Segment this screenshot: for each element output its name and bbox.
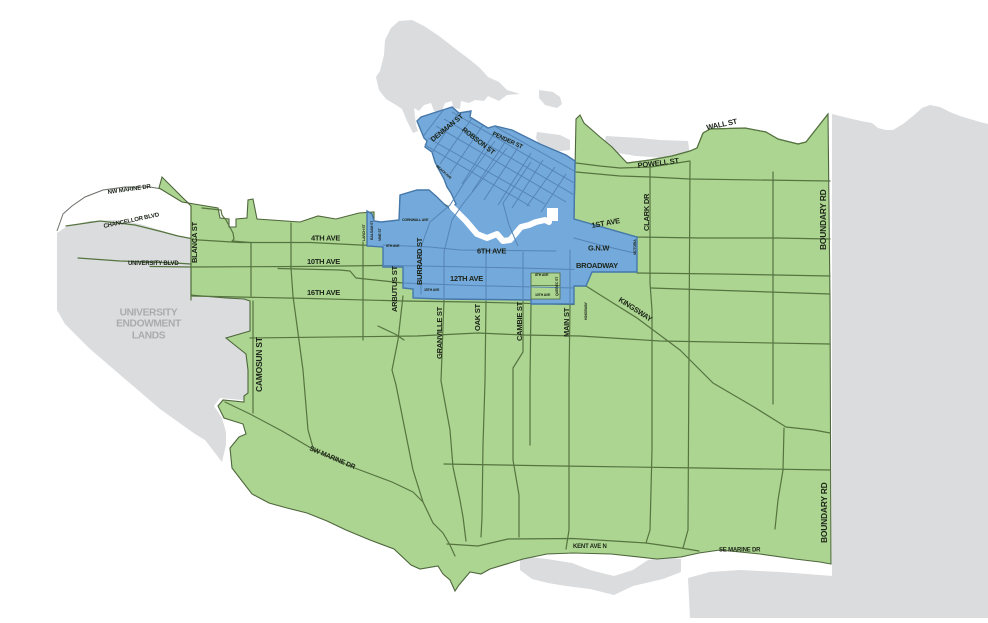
svg-text:10TH AVE: 10TH AVE bbox=[307, 257, 340, 266]
svg-text:BOUNDARY RD: BOUNDARY RD bbox=[818, 189, 828, 250]
svg-text:ENDOWMENT: ENDOWMENT bbox=[116, 319, 182, 330]
svg-text:8TH AVE: 8TH AVE bbox=[535, 273, 549, 277]
svg-text:G.N.W: G.N.W bbox=[588, 244, 610, 253]
svg-text:5TH AVE: 5TH AVE bbox=[386, 244, 400, 248]
svg-text:BROADWAY: BROADWAY bbox=[576, 261, 618, 270]
svg-text:BALSAM ST: BALSAM ST bbox=[370, 220, 374, 240]
svg-text:ARBUTUS ST: ARBUTUS ST bbox=[390, 265, 399, 312]
svg-text:BLANCA ST: BLANCA ST bbox=[190, 222, 199, 263]
svg-text:15TH AVE: 15TH AVE bbox=[424, 288, 440, 292]
svg-text:GRANVILLE ST: GRANVILLE ST bbox=[435, 306, 444, 359]
svg-text:SE MARINE DR: SE MARINE DR bbox=[719, 548, 761, 554]
svg-text:UNIVERSITY: UNIVERSITY bbox=[120, 308, 178, 319]
svg-text:LANDS: LANDS bbox=[132, 331, 166, 342]
svg-text:BURRARD ST: BURRARD ST bbox=[415, 237, 424, 285]
svg-text:MAIN ST: MAIN ST bbox=[562, 307, 571, 337]
svg-text:VINE ST: VINE ST bbox=[378, 227, 382, 241]
svg-text:CAMBIE ST: CAMBIE ST bbox=[515, 301, 524, 341]
svg-text:10TH AVE: 10TH AVE bbox=[535, 293, 551, 297]
svg-text:QUEBEC ST: QUEBEC ST bbox=[555, 276, 559, 296]
svg-text:6TH AVE: 6TH AVE bbox=[477, 247, 506, 256]
svg-text:KENT AVE N: KENT AVE N bbox=[573, 544, 607, 550]
svg-text:16TH AVE: 16TH AVE bbox=[307, 288, 340, 297]
svg-text:4TH AVE: 4TH AVE bbox=[311, 234, 340, 243]
svg-text:LARCH ST: LARCH ST bbox=[362, 223, 366, 241]
svg-text:CORNWALL AVE: CORNWALL AVE bbox=[402, 218, 429, 222]
svg-text:BOUNDARY RD: BOUNDARY RD bbox=[819, 482, 829, 543]
svg-text:KINGSWAY: KINGSWAY bbox=[584, 302, 588, 320]
svg-text:12TH AVE: 12TH AVE bbox=[450, 274, 483, 283]
svg-text:VICTORIA: VICTORIA bbox=[633, 239, 637, 255]
svg-text:OAK ST: OAK ST bbox=[473, 303, 482, 331]
svg-text:UNIVERSITY BLVD: UNIVERSITY BLVD bbox=[128, 261, 179, 267]
svg-text:CLARK DR: CLARK DR bbox=[642, 193, 651, 231]
svg-text:CAMOSUN ST: CAMOSUN ST bbox=[254, 336, 264, 392]
